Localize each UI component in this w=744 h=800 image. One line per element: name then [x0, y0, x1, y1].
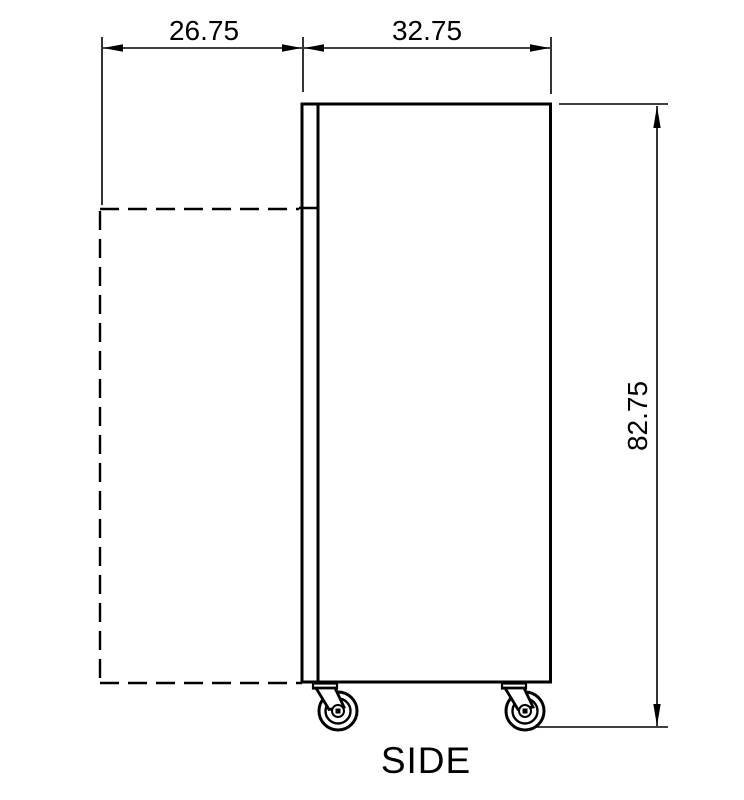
- rear-wheel-axle: [523, 709, 528, 714]
- arrowhead-down: [653, 704, 660, 726]
- front-wheel-axle: [336, 709, 341, 714]
- side-view-technical-drawing: 26.75 32.75 82.75 SIDE: [0, 0, 744, 800]
- caster-front: [313, 684, 357, 731]
- dimension-overall-height: 82.75: [535, 104, 668, 727]
- arrowhead-right: [530, 44, 550, 51]
- drawing-page: 26.75 32.75 82.75 SIDE: [0, 0, 744, 800]
- cabinet-outline: [299, 104, 551, 682]
- arrowhead-right: [282, 44, 302, 51]
- dimension-label-overall-height: 82.75: [622, 381, 653, 451]
- dimension-label-cabinet-depth: 32.75: [392, 15, 462, 46]
- arrowhead-up: [653, 106, 660, 128]
- dimension-door-swing-depth: 26.75: [102, 15, 302, 205]
- arrowhead-left: [103, 44, 123, 51]
- dimension-cabinet-depth: 32.75: [303, 15, 551, 94]
- dimension-label-door-swing: 26.75: [169, 15, 239, 46]
- caster-rear: [502, 684, 544, 731]
- door-swing-dashed-outline: [100, 209, 302, 683]
- view-title: SIDE: [381, 740, 471, 781]
- cabinet-body: [302, 104, 551, 682]
- arrowhead-left: [304, 44, 324, 51]
